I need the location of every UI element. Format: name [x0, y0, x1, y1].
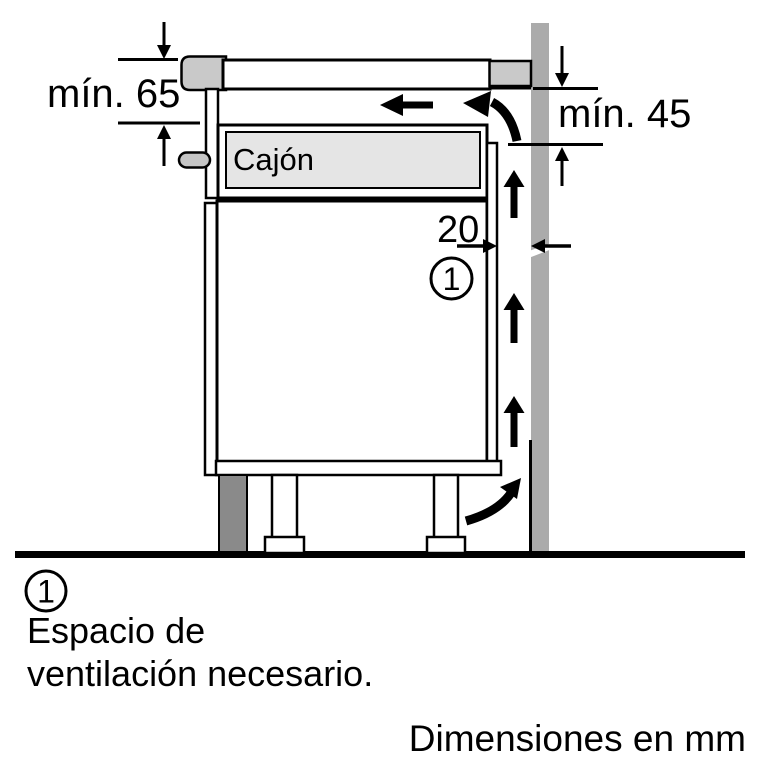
airflow-curve-bottom — [466, 493, 511, 521]
installation-diagram-page: Cajón mín. 65 mín. 45 20 1 1 Espacio — [0, 0, 760, 760]
airflow-up-arrow-3-shaft — [511, 413, 518, 447]
min65-label: mín. 65 — [47, 72, 180, 116]
legend-callout-number: 1 — [37, 574, 55, 610]
cabinet-bottom-panel — [216, 461, 501, 475]
airflow-left-arrow-head — [380, 94, 403, 116]
hob-right-block — [490, 61, 532, 86]
front-leg-foot — [265, 537, 304, 553]
hob-left-cap — [182, 57, 227, 91]
hob-body — [223, 60, 490, 89]
min65-arrow-down-head — [157, 45, 171, 59]
airflow-curve-top-head — [463, 91, 491, 117]
airflow-up-arrow-2-head — [504, 293, 525, 310]
airflow-curve-top — [492, 102, 517, 141]
front-leg-stem — [272, 475, 297, 539]
airflow-left-arrow-shaft — [402, 102, 433, 109]
back-leg-foot — [427, 537, 465, 553]
min65-arrow-up-head — [157, 125, 171, 139]
plinth — [219, 475, 247, 552]
cabinet-left-panel-upper — [206, 89, 218, 198]
wall — [531, 23, 549, 552]
cabinet-left-panel-lower — [205, 203, 217, 475]
back-leg-stem — [434, 475, 458, 539]
min45-label: mín. 45 — [558, 92, 691, 136]
airflow-up-arrow-2-shaft — [511, 310, 518, 343]
airflow-up-arrow-3-head — [504, 396, 525, 413]
min45-arrow-up-head — [555, 147, 569, 161]
airflow-up-arrow-1-shaft — [511, 187, 518, 218]
cabinet-right-panel — [487, 143, 497, 473]
min45-arrow-down-head — [555, 73, 569, 87]
drawer-label: Cajón — [233, 142, 314, 177]
airflow-up-arrow-1-head — [504, 170, 525, 187]
mounting-peg — [179, 153, 210, 168]
legend-line2: ventilación necesario. — [27, 653, 373, 694]
floor-line — [15, 551, 745, 558]
units-note: Dimensiones en mm — [409, 718, 746, 759]
legend-line1: Espacio de — [27, 610, 205, 651]
callout-1-number: 1 — [443, 261, 461, 297]
installation-diagram: Cajón mín. 65 mín. 45 20 1 1 Espacio — [0, 0, 760, 760]
